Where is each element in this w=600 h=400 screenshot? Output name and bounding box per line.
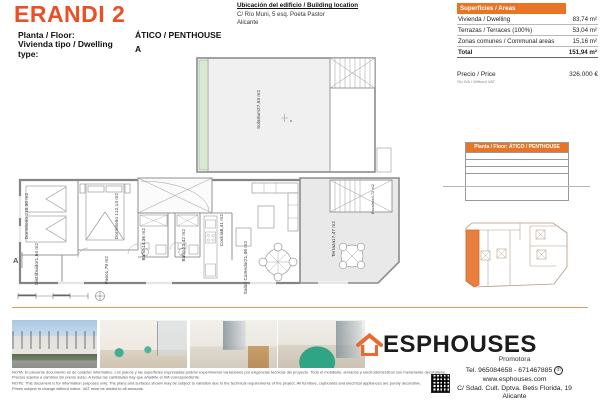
phone-numbers: Tel. 965084658 - 671467885 xyxy=(466,367,553,374)
room-label-cocina: Cocina8,41 m2 xyxy=(219,214,225,246)
solarium-area xyxy=(208,58,330,172)
brand-tagline: Promotora xyxy=(432,356,597,363)
planter-strip xyxy=(199,60,208,170)
communal-stairwell xyxy=(138,178,212,213)
bedroom1-bed xyxy=(80,184,130,240)
room-label-distribuidor: Distribuidor1,64 m2 xyxy=(34,243,40,285)
kitchen-counter xyxy=(204,216,217,278)
photo-living-room xyxy=(100,320,187,368)
photo-kitchen xyxy=(190,320,277,368)
bedroom2-beds xyxy=(26,186,66,242)
elevation-header: Planta / Floor: ÁTICO / PENTHOUSE xyxy=(466,143,568,152)
brand-logo: ESPHOUSES xyxy=(356,333,537,357)
disclaimer-line-es-2: Precios sujetos a cambios sin previo avi… xyxy=(12,375,448,380)
section-mark: A xyxy=(13,256,18,265)
scale-bar xyxy=(18,293,88,299)
disclaimer: NOTA: El presente documento es de caráct… xyxy=(12,370,448,392)
north-compass xyxy=(96,292,105,301)
office-address-line1: C/ Sdad. Cult. Dptva. Betis Florida, 19 xyxy=(432,385,597,394)
photo-building-exterior xyxy=(12,320,97,368)
office-address-line2: Alicante xyxy=(432,393,597,400)
elevation-floor-row xyxy=(466,159,568,166)
house-icon xyxy=(356,333,383,357)
footer-separator xyxy=(12,307,588,308)
room-label-bano1: Baño 14,36 m2 xyxy=(141,228,147,260)
room-label-dormitorio2: Dormitorio 210,30 m2 xyxy=(24,193,30,239)
terrace-stairs xyxy=(330,180,392,212)
upper-stairs xyxy=(330,58,375,88)
elevation-floor-row xyxy=(466,166,568,173)
highlighted-unit xyxy=(466,230,479,287)
site-plan xyxy=(466,223,567,287)
brand-name: ESPHOUSES xyxy=(383,333,537,357)
elevation-floor-row xyxy=(466,152,568,159)
room-label-dormitorio1: Dormitorio 112,14 m2 xyxy=(114,193,120,239)
whatsapp-icon: ✆ xyxy=(554,366,563,375)
elevation-floor-row xyxy=(466,173,568,186)
room-label-escalera: Escalera4,72 m2 xyxy=(371,184,376,214)
disclaimer-line-en-2: Prices subject to change without notice.… xyxy=(12,387,448,392)
bathroom-fixtures xyxy=(140,215,198,256)
room-label-solarium: Solarium27,53 m2 xyxy=(256,90,262,129)
ground-line xyxy=(443,186,590,187)
building-elevation-table: Planta / Floor: ÁTICO / PENTHOUSE xyxy=(465,142,569,201)
terrace-table xyxy=(339,243,365,269)
property-sheet: ERANDI 2 Planta / Floor: ÁTICO / PENTHOU… xyxy=(0,0,600,400)
room-label-salon: Salón Comedor21,06 m2 xyxy=(243,241,249,294)
contact-block: Tel. 965084658 - 671467885✆ www.esphouse… xyxy=(432,366,597,400)
elevation-floor-row xyxy=(466,186,568,200)
room-label-paso: Paso1,79 m2 xyxy=(104,256,110,284)
photo-bedroom xyxy=(278,320,365,368)
room-label-terraza: Terraza17,47 m2 xyxy=(331,221,337,257)
website-link[interactable]: www.esphouses.com xyxy=(432,376,597,385)
room-label-bano2: Baño 23,42 m2 xyxy=(181,229,187,261)
